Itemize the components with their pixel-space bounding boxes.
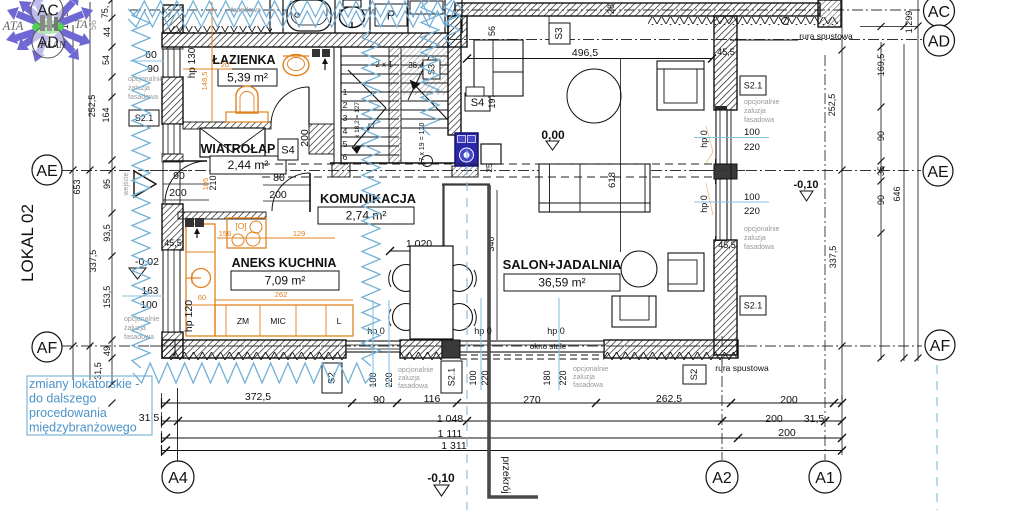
svg-text:wejście: wejście xyxy=(123,172,130,196)
svg-text:45,5: 45,5 xyxy=(164,238,182,248)
svg-text:90: 90 xyxy=(173,170,185,182)
svg-text:A2: A2 xyxy=(712,470,732,487)
svg-text:100: 100 xyxy=(744,127,760,138)
svg-text:rura spustowa: rura spustowa xyxy=(799,31,853,41)
svg-text:45,5: 45,5 xyxy=(718,240,736,250)
svg-text:3: 3 xyxy=(343,113,348,123)
svg-text:procedowania: procedowania xyxy=(29,406,107,420)
svg-text:164: 164 xyxy=(101,107,111,122)
svg-text:żaluzja: żaluzja xyxy=(744,235,766,242)
svg-text:252,5: 252,5 xyxy=(827,94,837,117)
svg-text:S4: S4 xyxy=(471,97,484,109)
svg-text:54: 54 xyxy=(101,55,111,65)
svg-text:100: 100 xyxy=(744,192,760,203)
svg-text:31,5: 31,5 xyxy=(804,413,825,425)
svg-text:200: 200 xyxy=(299,129,311,147)
svg-text:S4: S4 xyxy=(281,144,294,156)
svg-text:A4: A4 xyxy=(168,470,188,487)
svg-text:fasadowa: fasadowa xyxy=(573,382,603,389)
svg-text:156: 156 xyxy=(219,229,232,238)
svg-text:20: 20 xyxy=(221,60,229,69)
svg-text:fasadowa: fasadowa xyxy=(744,117,774,124)
svg-text:45,5: 45,5 xyxy=(717,47,735,57)
svg-text:80: 80 xyxy=(273,172,285,184)
svg-text:AC: AC xyxy=(37,3,59,20)
svg-text:S2.1: S2.1 xyxy=(744,301,763,311)
svg-text:fasadowa: fasadowa xyxy=(398,383,428,390)
svg-text:129: 129 xyxy=(293,229,306,238)
svg-text:AD: AD xyxy=(928,33,950,50)
svg-text:200: 200 xyxy=(778,427,796,439)
svg-text:1 311: 1 311 xyxy=(441,440,467,452)
svg-text:PLAN: PLAN xyxy=(39,40,67,51)
svg-text:49: 49 xyxy=(102,346,112,356)
svg-text:ATA: ATA xyxy=(2,19,24,33)
svg-text:opcjonalnie: opcjonalnie xyxy=(573,366,609,373)
svg-text:200: 200 xyxy=(765,413,783,425)
svg-text:ZM: ZM xyxy=(237,316,249,326)
svg-text:116: 116 xyxy=(424,393,441,405)
svg-text:148,5: 148,5 xyxy=(200,72,209,91)
svg-text:hp 0: hp 0 xyxy=(699,195,709,213)
svg-text:153,5: 153,5 xyxy=(102,286,112,309)
svg-text:żaluzja: żaluzja xyxy=(573,374,595,381)
svg-text:opcjonalnie: opcjonalnie xyxy=(398,367,434,374)
svg-text:4: 4 xyxy=(343,126,348,136)
svg-text:1 048: 1 048 xyxy=(437,413,463,425)
svg-text:56: 56 xyxy=(487,26,497,36)
svg-text:90: 90 xyxy=(876,131,886,141)
svg-text:56: 56 xyxy=(88,20,98,30)
svg-text:SALON+JADALNIA: SALON+JADALNIA xyxy=(503,257,622,272)
svg-text:6: 6 xyxy=(343,152,348,162)
svg-text:1 111: 1 111 xyxy=(438,428,463,440)
svg-text:ANEKS KUCHNIA: ANEKS KUCHNIA xyxy=(232,256,337,270)
svg-text:618: 618 xyxy=(607,172,618,188)
svg-text:90: 90 xyxy=(876,195,886,205)
svg-text:36,59 m²: 36,59 m² xyxy=(538,276,585,290)
svg-text:200: 200 xyxy=(269,189,287,201)
svg-text:0,00: 0,00 xyxy=(541,128,565,142)
svg-text:1: 1 xyxy=(343,87,348,97)
svg-text:TA: TA xyxy=(74,17,88,31)
svg-text:opcjonalnie: opcjonalnie xyxy=(744,226,780,233)
svg-text:rura spustowa: rura spustowa xyxy=(715,363,769,373)
svg-text:AF: AF xyxy=(37,340,58,357)
svg-text:200: 200 xyxy=(169,187,187,199)
svg-text:105: 105 xyxy=(201,178,210,191)
svg-text:220: 220 xyxy=(744,142,760,153)
svg-text:2,44 m²: 2,44 m² xyxy=(228,158,269,172)
svg-text:AC: AC xyxy=(928,4,950,21)
svg-text:646: 646 xyxy=(892,186,902,201)
svg-text:międzybranżowego: międzybranżowego xyxy=(29,421,137,435)
svg-text:90: 90 xyxy=(373,394,385,406)
svg-text:fasadowa: fasadowa xyxy=(744,244,774,251)
svg-text:hp 0: hp 0 xyxy=(699,130,709,148)
svg-text:x 18,2 = 127: x 18,2 = 127 xyxy=(354,102,361,138)
svg-text:hp 0: hp 0 xyxy=(474,326,492,336)
svg-text:337,5: 337,5 xyxy=(88,250,98,273)
svg-text:95: 95 xyxy=(102,179,112,189)
svg-text:44: 44 xyxy=(102,27,112,37)
svg-text:653: 653 xyxy=(72,179,82,194)
svg-text:75,: 75, xyxy=(100,6,110,19)
svg-text:żaluzja: żaluzja xyxy=(128,85,150,92)
svg-text:2: 2 xyxy=(343,100,348,110)
svg-text:okno stałe: okno stałe xyxy=(530,342,567,351)
svg-text:przekrój: przekrój xyxy=(500,456,512,493)
svg-text:AF: AF xyxy=(930,338,951,355)
svg-text:372,5: 372,5 xyxy=(245,391,271,403)
svg-text:100: 100 xyxy=(468,370,478,385)
svg-text:252,5: 252,5 xyxy=(87,95,97,118)
svg-text:180: 180 xyxy=(542,370,552,385)
svg-text:do dalszego: do dalszego xyxy=(29,392,96,406)
svg-text:S3: S3 xyxy=(554,27,565,40)
svg-text:262,5: 262,5 xyxy=(656,393,682,405)
svg-text:WIATROŁAP: WIATROŁAP xyxy=(201,142,276,156)
svg-text:60: 60 xyxy=(198,293,206,302)
svg-text:hp 130: hp 130 xyxy=(187,47,198,78)
svg-text:MIC: MIC xyxy=(270,316,286,326)
svg-text:S2.1: S2.1 xyxy=(744,81,763,91)
svg-text:S2.1: S2.1 xyxy=(447,368,457,387)
svg-text:60: 60 xyxy=(145,49,157,61)
svg-text:opcjonalnie: opcjonalnie xyxy=(744,99,780,106)
svg-text:-0,10: -0,10 xyxy=(793,179,818,191)
svg-text:36,4: 36,4 xyxy=(408,61,424,70)
svg-text:5,39 m²: 5,39 m² xyxy=(227,71,268,85)
svg-text:AE: AE xyxy=(36,163,57,180)
svg-text:A1: A1 xyxy=(815,470,835,487)
svg-text:opcjonalnie: opcjonalnie xyxy=(128,76,164,83)
svg-text:28: 28 xyxy=(606,4,616,14)
svg-text:zmiany lokatorskie -: zmiany lokatorskie - xyxy=(29,377,139,391)
svg-text:5: 5 xyxy=(343,139,348,149)
svg-text:270: 270 xyxy=(523,394,541,406)
svg-text:200: 200 xyxy=(780,394,798,406)
svg-text:31,5: 31,5 xyxy=(139,412,160,424)
svg-text:169,5: 169,5 xyxy=(876,54,886,77)
svg-text:żaluzja: żaluzja xyxy=(398,375,420,382)
svg-text:-0,10: -0,10 xyxy=(427,471,455,485)
svg-text:220: 220 xyxy=(744,206,760,217)
svg-text:L: L xyxy=(337,316,342,326)
svg-text:2,74 m²: 2,74 m² xyxy=(346,209,387,223)
svg-text:35: 35 xyxy=(876,166,886,176)
svg-text:AE: AE xyxy=(927,164,948,181)
svg-text:LOKAL 02: LOKAL 02 xyxy=(18,204,37,282)
svg-text:hp 120: hp 120 xyxy=(183,300,195,332)
svg-text:93,5: 93,5 xyxy=(102,224,112,242)
svg-text:7,09 m²: 7,09 m² xyxy=(265,274,306,288)
svg-text:[O]: [O] xyxy=(235,221,246,231)
svg-text:S2: S2 xyxy=(689,369,700,381)
svg-text:żaluzja: żaluzja xyxy=(744,108,766,115)
svg-text:496,5: 496,5 xyxy=(572,47,598,59)
svg-text:262: 262 xyxy=(275,290,288,299)
svg-text:hp 0: hp 0 xyxy=(547,326,565,336)
svg-text:1 299: 1 299 xyxy=(904,11,914,34)
svg-text:337,5: 337,5 xyxy=(828,246,838,269)
